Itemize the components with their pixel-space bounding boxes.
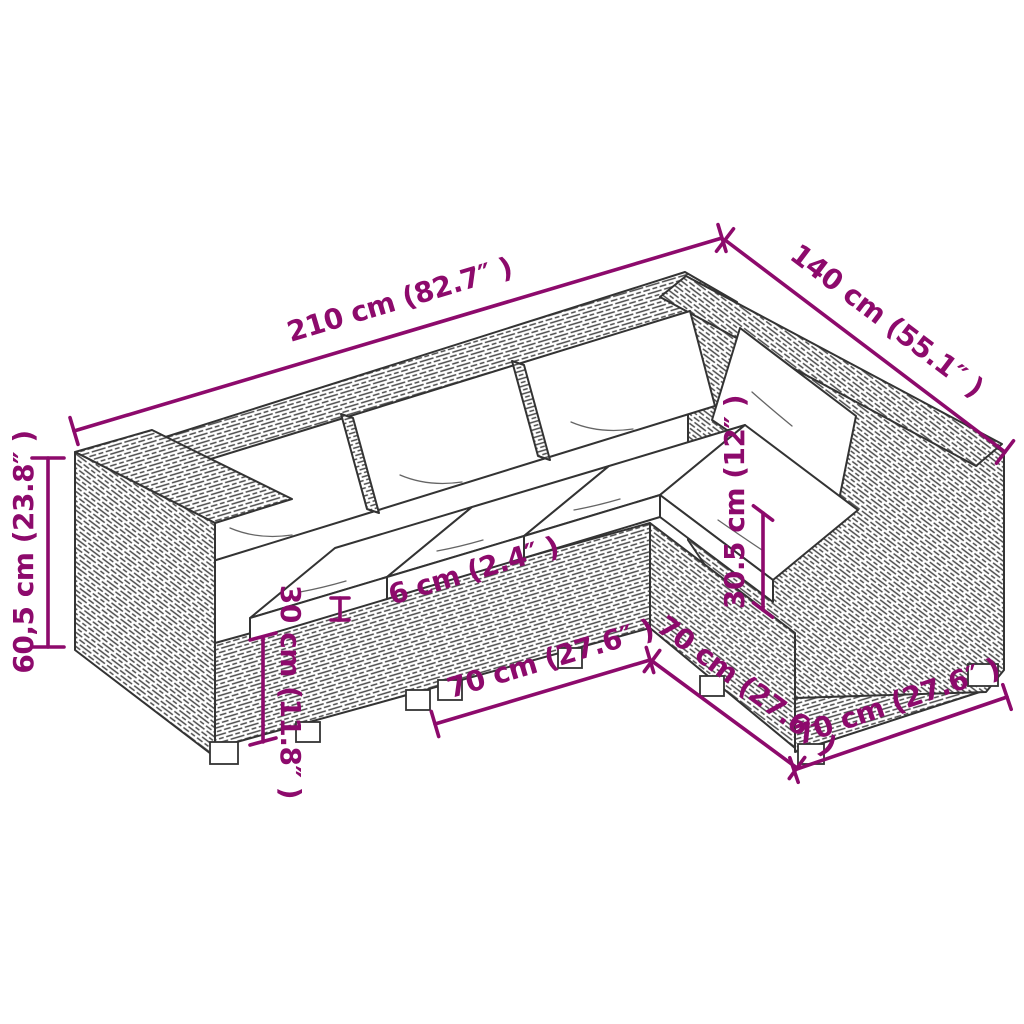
diagram-canvas: 210 cm (82.7″ ) 140 cm (55.1″ ) 60,5 cm … [0, 0, 1024, 1024]
sofa-foot [406, 690, 430, 710]
dimension-label-base-height: 30 cm (11.8″ ) [274, 585, 307, 799]
dimension-label-total-height: 60,5 cm (23.8″ ) [7, 430, 40, 673]
sofa-foot [210, 742, 238, 764]
sofa-dimension-diagram: 210 cm (82.7″ ) 140 cm (55.1″ ) 60,5 cm … [0, 0, 1024, 1024]
dimension-total-height: 60,5 cm (23.8″ ) [7, 430, 64, 673]
dimension-label-backrest-height: 30.5 cm (12″ ) [718, 395, 751, 609]
